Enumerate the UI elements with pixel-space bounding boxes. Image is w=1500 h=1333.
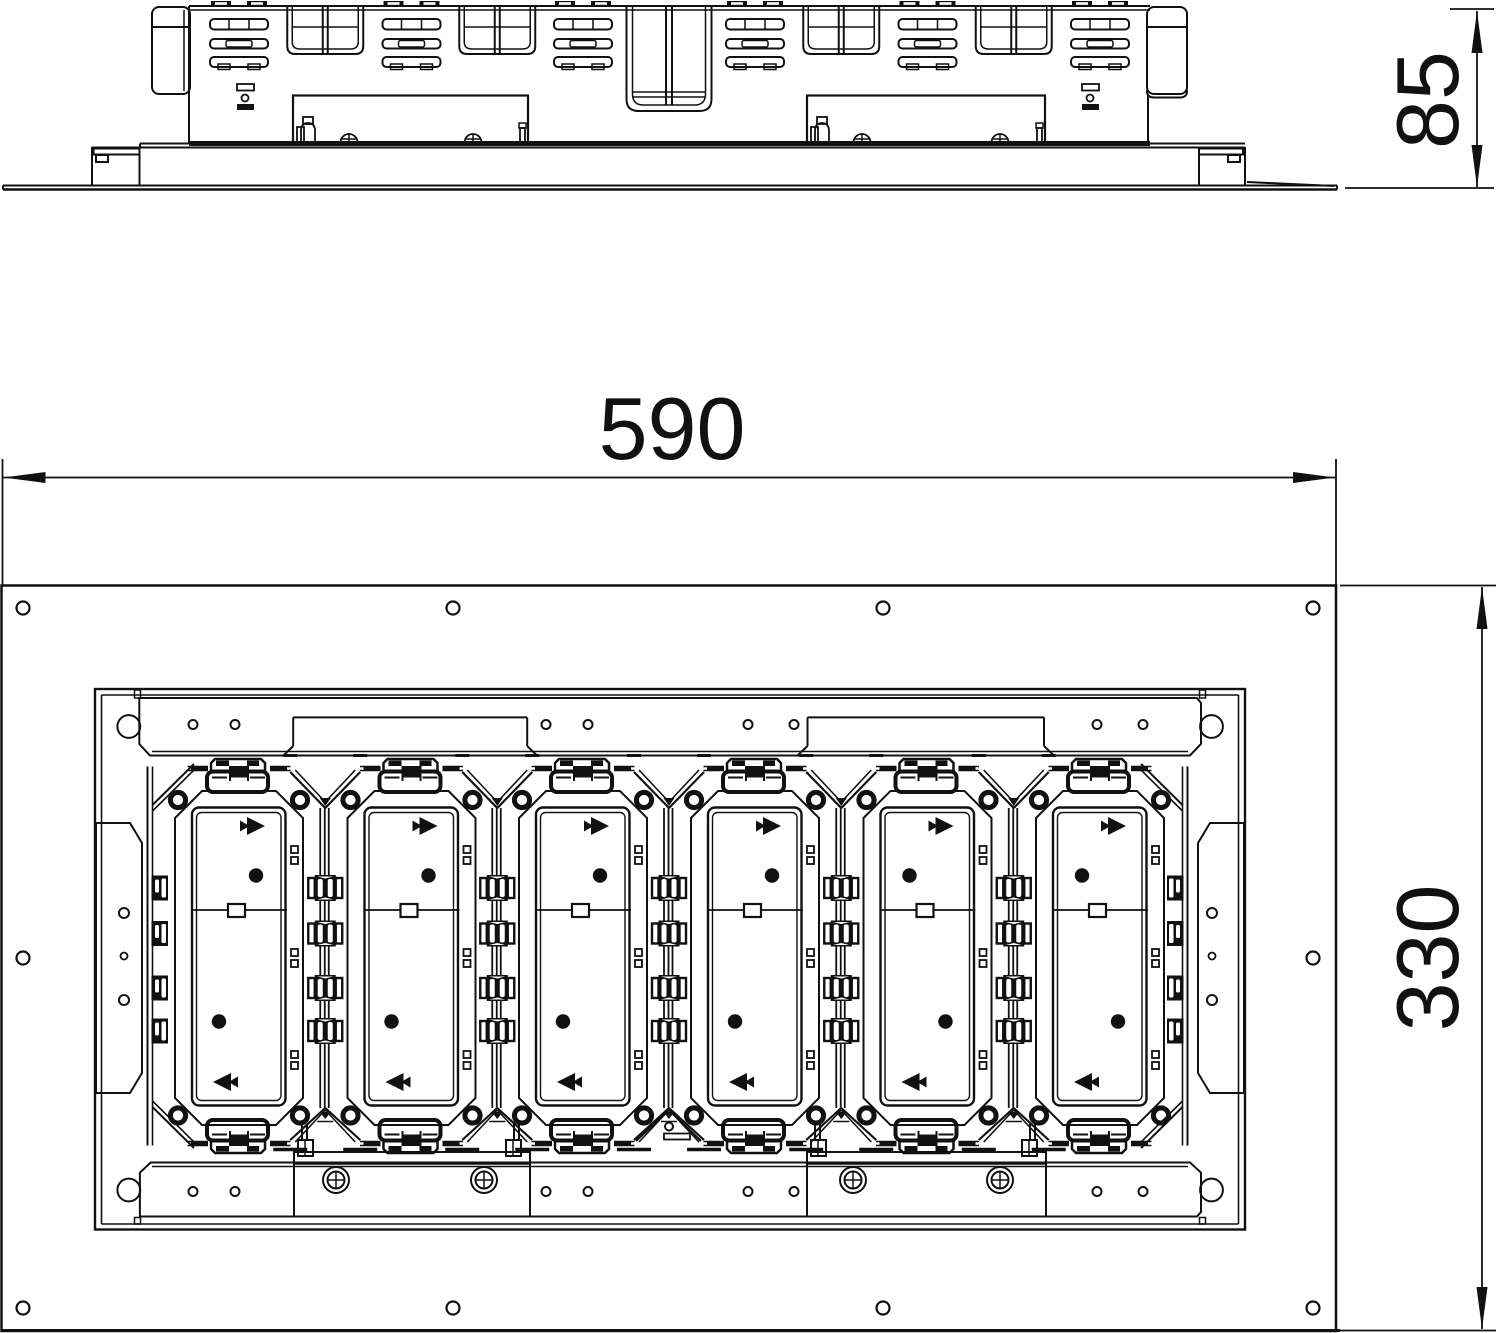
svg-text:590: 590 bbox=[599, 379, 746, 478]
svg-text:85: 85 bbox=[1378, 51, 1477, 149]
svg-text:330: 330 bbox=[1378, 885, 1477, 1032]
